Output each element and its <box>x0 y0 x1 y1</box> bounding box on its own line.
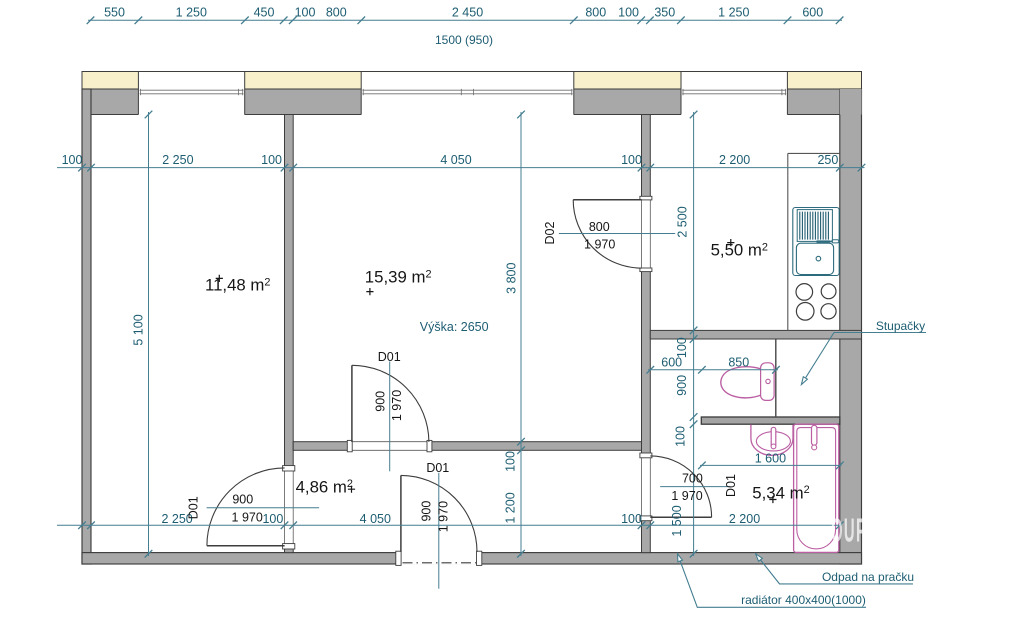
svg-text:100: 100 <box>618 6 639 20</box>
svg-text:5 100: 5 100 <box>132 314 146 345</box>
svg-text:4,86 m2: 4,86 m2 <box>296 477 353 496</box>
svg-text:15,39 m2: 15,39 m2 <box>365 268 432 287</box>
svg-text:4 050: 4 050 <box>440 153 471 167</box>
svg-text:2 200: 2 200 <box>719 153 750 167</box>
svg-text:800: 800 <box>585 6 606 20</box>
svg-text:600: 600 <box>661 355 682 369</box>
svg-text:900: 900 <box>420 501 434 522</box>
svg-text:900: 900 <box>374 391 388 412</box>
svg-text:100: 100 <box>621 153 642 167</box>
svg-text:1 970: 1 970 <box>436 501 450 532</box>
svg-text:100: 100 <box>62 153 83 167</box>
svg-text:100: 100 <box>262 512 283 526</box>
svg-text:5,50 m2: 5,50 m2 <box>711 241 768 260</box>
svg-text:3 800: 3 800 <box>504 263 518 294</box>
svg-text:1500 (950): 1500 (950) <box>435 33 493 47</box>
svg-text:1 200: 1 200 <box>504 492 518 523</box>
svg-text:2 250: 2 250 <box>162 153 193 167</box>
svg-text:1 970: 1 970 <box>584 237 615 251</box>
svg-text:1 500: 1 500 <box>670 505 684 536</box>
svg-text:D02: D02 <box>543 221 557 244</box>
svg-text:radiátor 400x400(1000): radiátor 400x400(1000) <box>741 593 866 607</box>
svg-text:600: 600 <box>802 6 823 20</box>
svg-text:2 500: 2 500 <box>675 206 689 237</box>
svg-text:900: 900 <box>232 492 253 506</box>
svg-text:4 050: 4 050 <box>360 512 391 526</box>
svg-text:Odpad na pračku: Odpad na pračku <box>822 570 914 584</box>
svg-text:100: 100 <box>504 451 518 472</box>
svg-text:100: 100 <box>621 512 642 526</box>
svg-text:1 970: 1 970 <box>671 489 702 503</box>
svg-text:D01: D01 <box>378 350 401 364</box>
svg-text:1 600: 1 600 <box>755 451 786 465</box>
svg-text:2 450: 2 450 <box>452 6 483 20</box>
svg-text:D01: D01 <box>426 461 449 475</box>
svg-text:350: 350 <box>654 6 675 20</box>
svg-text:100: 100 <box>295 6 316 20</box>
svg-text:D01: D01 <box>724 474 738 497</box>
svg-text:1 250: 1 250 <box>176 6 207 20</box>
svg-text:Stupačky: Stupačky <box>876 319 925 333</box>
svg-text:800: 800 <box>326 6 347 20</box>
svg-text:850: 850 <box>728 355 749 369</box>
svg-text:5,34 m2: 5,34 m2 <box>752 483 809 502</box>
svg-text:900: 900 <box>675 375 689 396</box>
svg-text:2 200: 2 200 <box>729 512 760 526</box>
svg-text:D01: D01 <box>187 496 201 519</box>
svg-text:1 250: 1 250 <box>718 6 749 20</box>
svg-text:450: 450 <box>254 6 275 20</box>
svg-text:100: 100 <box>261 153 282 167</box>
svg-text:OUP: OUP <box>831 513 867 549</box>
svg-text:1 970: 1 970 <box>232 510 263 524</box>
svg-text:1 970: 1 970 <box>390 390 404 421</box>
svg-text:11,48 m2: 11,48 m2 <box>205 276 270 295</box>
svg-text:700: 700 <box>682 471 703 485</box>
svg-text:250: 250 <box>817 153 838 167</box>
svg-text:Výška: 2650: Výška: 2650 <box>420 320 489 334</box>
svg-text:100: 100 <box>674 426 688 447</box>
svg-text:550: 550 <box>104 6 125 20</box>
svg-text:800: 800 <box>589 220 610 234</box>
